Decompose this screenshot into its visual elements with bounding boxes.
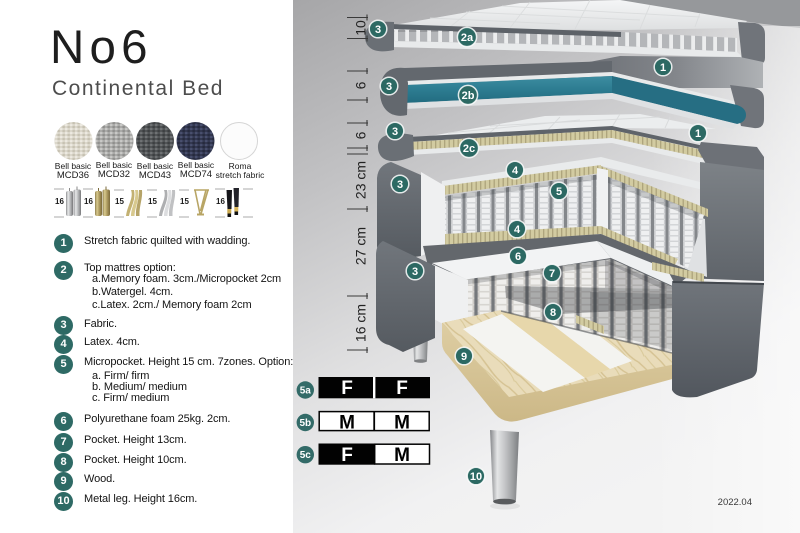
svg-text:M: M <box>339 413 355 434</box>
svg-text:2a: 2a <box>461 32 474 44</box>
svg-text:5b: 5b <box>299 418 311 429</box>
svg-text:4: 4 <box>514 224 521 236</box>
svg-text:8: 8 <box>550 307 556 319</box>
svg-text:16 cm: 16 cm <box>353 304 369 342</box>
svg-text:6: 6 <box>515 251 521 263</box>
svg-text:F: F <box>396 378 408 399</box>
svg-text:27 cm: 27 cm <box>353 227 369 265</box>
svg-text:M: M <box>394 413 410 434</box>
svg-text:1: 1 <box>695 128 701 140</box>
svg-text:6: 6 <box>353 81 369 89</box>
svg-text:9: 9 <box>461 351 467 363</box>
svg-text:7: 7 <box>549 268 555 280</box>
svg-text:10: 10 <box>353 20 369 36</box>
svg-text:3: 3 <box>392 126 398 138</box>
svg-text:2b: 2b <box>462 90 475 102</box>
svg-text:5c: 5c <box>300 450 312 461</box>
svg-text:1: 1 <box>660 62 666 74</box>
svg-text:3: 3 <box>412 266 418 278</box>
svg-text:3: 3 <box>386 81 392 93</box>
svg-text:23 cm: 23 cm <box>353 161 369 199</box>
svg-text:5a: 5a <box>300 386 312 397</box>
svg-text:10: 10 <box>470 471 482 483</box>
svg-text:2022.04: 2022.04 <box>718 497 752 508</box>
svg-text:F: F <box>341 445 353 466</box>
svg-text:6: 6 <box>353 131 369 139</box>
svg-text:2c: 2c <box>463 143 475 155</box>
svg-text:5: 5 <box>556 186 562 198</box>
svg-text:3: 3 <box>397 179 403 191</box>
svg-text:F: F <box>341 378 353 399</box>
svg-text:3: 3 <box>375 24 381 36</box>
svg-text:4: 4 <box>512 165 519 177</box>
svg-text:M: M <box>394 445 410 466</box>
